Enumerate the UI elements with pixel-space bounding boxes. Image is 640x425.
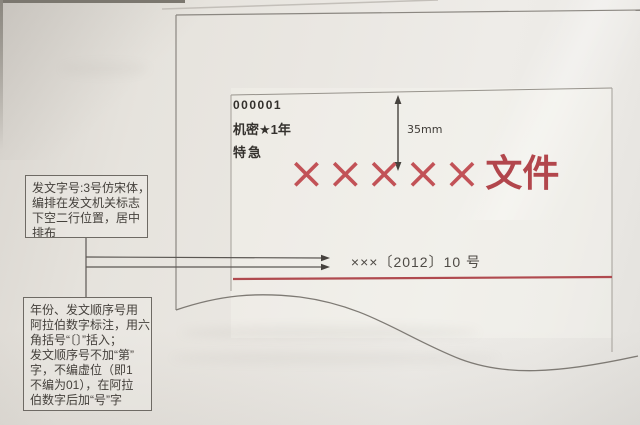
connector-arrowhead-1	[321, 255, 330, 261]
annotation-line: 下空二行位置，居中	[32, 211, 143, 226]
measurement-arrowhead-up	[395, 95, 402, 104]
annotation-line: 不编为01），在阿拉	[30, 378, 147, 393]
annotation-line: 年份、发文顺序号用	[30, 303, 147, 318]
connector-arrowhead-2	[321, 264, 330, 270]
annotation-line: 阿拉伯数字标注，用六	[30, 318, 147, 333]
copy-serial-number: 000001	[233, 98, 282, 112]
annotation-box-fawen-zihao: 发文字号:3号仿宋体， 编排在发文机关标志 下空二行位置，居中 排布	[25, 175, 148, 238]
title-suffix-wenjian: 文件	[485, 154, 559, 194]
reference-number: ×××〔2012〕10 号	[330, 252, 502, 272]
annotation-line: 编排在发文机关标志	[32, 196, 143, 211]
annotation-line: 字，不编虚位（即1	[30, 363, 147, 378]
photo-slant-edge	[162, 0, 438, 9]
red-separator-line	[233, 277, 612, 279]
torn-edge-curve	[176, 295, 638, 371]
annotation-line: 伯数字后加“号”字	[30, 393, 147, 408]
urgency-label: 特急	[233, 142, 263, 161]
measurement-35mm-label: 35mm	[407, 123, 442, 136]
outer-page-top-border	[176, 10, 640, 15]
annotation-box-year-sequence: 年份、发文顺序号用 阿拉伯数字标注，用六 角括号“〔〕”括入； 发文顺序号不加“…	[23, 297, 152, 411]
annotation-line: 发文顺序号不加“第”	[30, 348, 147, 363]
security-classification-label: 机密★1年	[233, 119, 291, 138]
connector-arrow-line-1	[86, 257, 322, 258]
document-title: ××××× 文件	[288, 150, 559, 198]
title-placeholder-x: ×××××	[288, 152, 482, 196]
annotation-line: 排布	[32, 226, 143, 238]
photo-canvas: 000001 机密★1年 特急 ××××× 文件 35mm ×××〔2012〕1…	[0, 0, 640, 425]
annotation-line: 角括号“〔〕”括入；	[30, 333, 147, 348]
annotation-line: 发文字号:3号仿宋体，	[32, 181, 143, 196]
inner-sheet-top-border	[231, 88, 612, 95]
